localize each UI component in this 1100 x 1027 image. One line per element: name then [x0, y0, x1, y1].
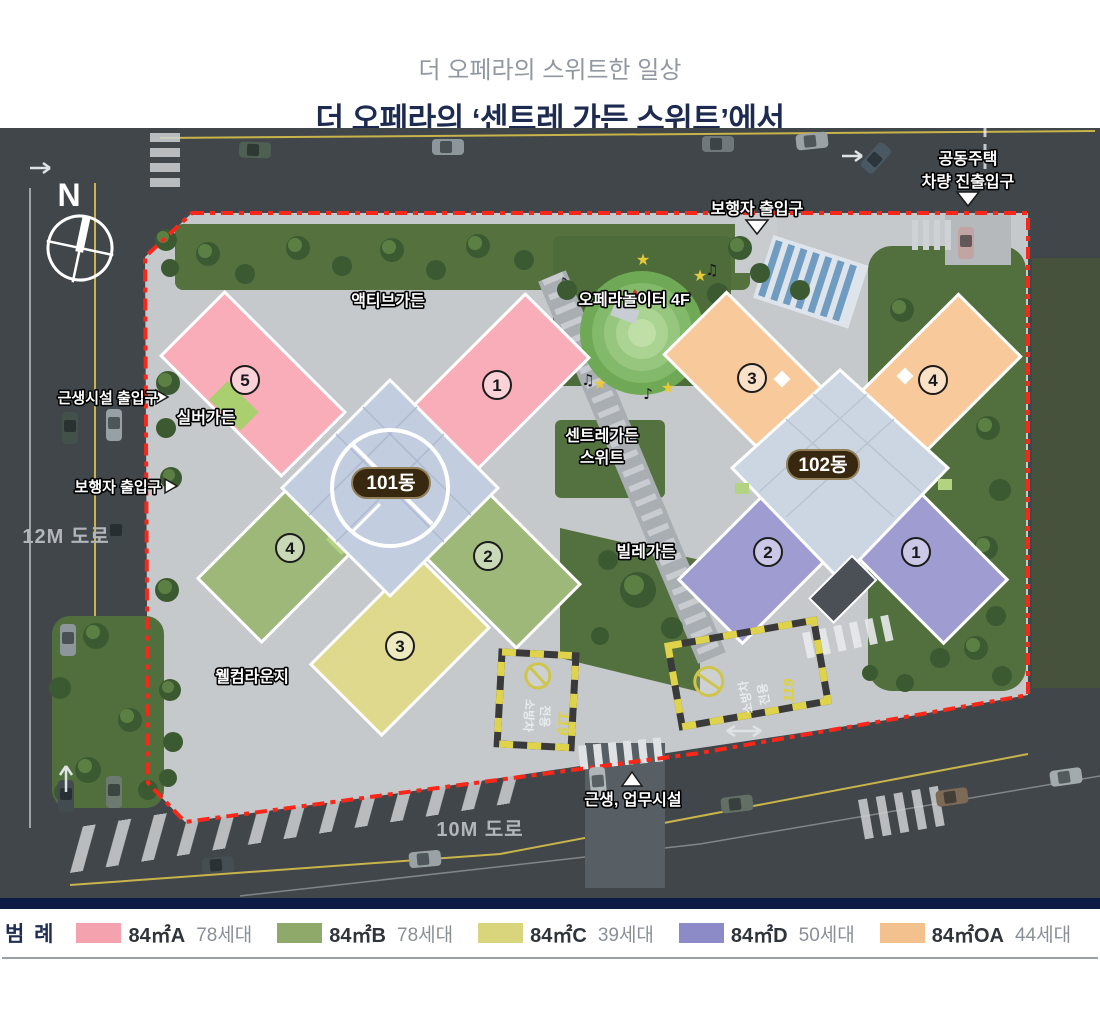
fire-lane-text: 전용 — [537, 705, 553, 728]
badge-102: 102동 — [798, 455, 847, 476]
legend-households-84oa: 44세대 — [1015, 920, 1071, 947]
legend-households-84a: 78세대 — [196, 920, 252, 947]
legend-households-84c: 39세대 — [598, 920, 654, 947]
label-road-10m: 10M 도로 — [436, 819, 523, 841]
unit-number: 4 — [928, 371, 938, 390]
south-access-road — [578, 737, 665, 888]
unit-number: 5 — [240, 371, 249, 390]
legend-households-84d: 50세대 — [799, 920, 855, 947]
legend-swatch-84a — [76, 923, 121, 943]
label-road-12m: 12M 도로 — [22, 526, 109, 548]
bottom-rule — [2, 957, 1098, 959]
unit-number: 3 — [747, 369, 756, 388]
site-plan: ★ ★ ★ ★ ★ ♪ ♫ ♪ ♫ — [0, 128, 1100, 898]
label-welcome-lounge: 웰컴라운지 — [215, 667, 289, 686]
music-note-icon: ♫ — [705, 261, 718, 279]
label-facility-left: 근생시설 출입구 — [58, 390, 159, 407]
fire-lane-number: 119 — [554, 711, 572, 736]
legend-type-84d: 84㎡D — [731, 919, 788, 948]
label-centre-garden-2: 스위트 — [580, 449, 624, 467]
legend-item-84a: 84㎡A 78세대 — [76, 919, 252, 948]
legend-type-84oa: 84㎡OA — [932, 919, 1004, 948]
label-vehicle-entrance-2: 차량 진출입구 — [922, 172, 1015, 191]
unit-number: 4 — [285, 539, 295, 558]
unit-number: 2 — [763, 543, 772, 562]
badge-101: 101동 — [366, 473, 415, 494]
legend-type-84a: 84㎡A — [128, 919, 185, 948]
music-note-icon: ♪ — [643, 385, 653, 403]
unit-number: 2 — [483, 547, 492, 566]
star-icon: ★ — [593, 374, 607, 393]
label-silver-garden: 실버가든 — [177, 409, 236, 427]
legend-item-84oa: 84㎡OA 44세대 — [880, 919, 1071, 948]
legend-households-84b: 78세대 — [397, 920, 453, 947]
legend-type-84b: 84㎡B — [329, 919, 386, 948]
label-neighborhood: 근생, 업무시설 — [584, 791, 681, 809]
star-icon: ★ — [636, 250, 650, 269]
label-centre-garden-1: 센트레가든 — [565, 427, 639, 445]
compass-n-label: N — [57, 177, 80, 213]
label-ville-garden: 빌레가든 — [617, 543, 676, 561]
legend-swatch-84c — [478, 923, 523, 943]
legend-type-84c: 84㎡C — [530, 919, 587, 948]
legend-swatch-84d — [679, 923, 724, 943]
legend-item-84b: 84㎡B 78세대 — [277, 919, 453, 948]
legend-item-84c: 84㎡C 39세대 — [478, 919, 654, 948]
navy-divider-bar — [0, 898, 1100, 909]
label-active-garden: 액티브가든 — [351, 291, 425, 310]
page-header: 더 오페라의 스위트한 일상 더 오페라의 ‘센트레 가든 스위트’에서 — [0, 0, 1100, 128]
unit-number: 1 — [492, 376, 501, 395]
label-opera-playground: 오페라놀이터 4F — [578, 290, 690, 309]
unit-number: 3 — [395, 637, 404, 656]
star-icon: ★ — [661, 378, 675, 397]
legend: 범 례 84㎡A 78세대 84㎡B 78세대 84㎡C 39세대 84㎡D 5… — [0, 909, 1100, 957]
page-subtitle: 더 오페라의 스위트한 일상 — [0, 50, 1100, 85]
legend-item-84d: 84㎡D 50세대 — [679, 919, 855, 948]
label-pedestrian-left: 보행자 출입구 — [75, 479, 162, 496]
legend-swatch-84b — [277, 923, 322, 943]
fire-lane-text: 소방차 — [521, 699, 538, 733]
label-pedestrian-top: 보행자 출입구 — [711, 200, 804, 218]
fire-lane-number: 119 — [780, 678, 798, 703]
unit-number: 1 — [911, 543, 920, 562]
legend-swatch-84oa — [880, 923, 925, 943]
legend-title: 범 례 — [5, 918, 55, 948]
music-note-icon: ♫ — [581, 371, 594, 389]
label-vehicle-entrance-1: 공동주택 — [939, 150, 998, 168]
